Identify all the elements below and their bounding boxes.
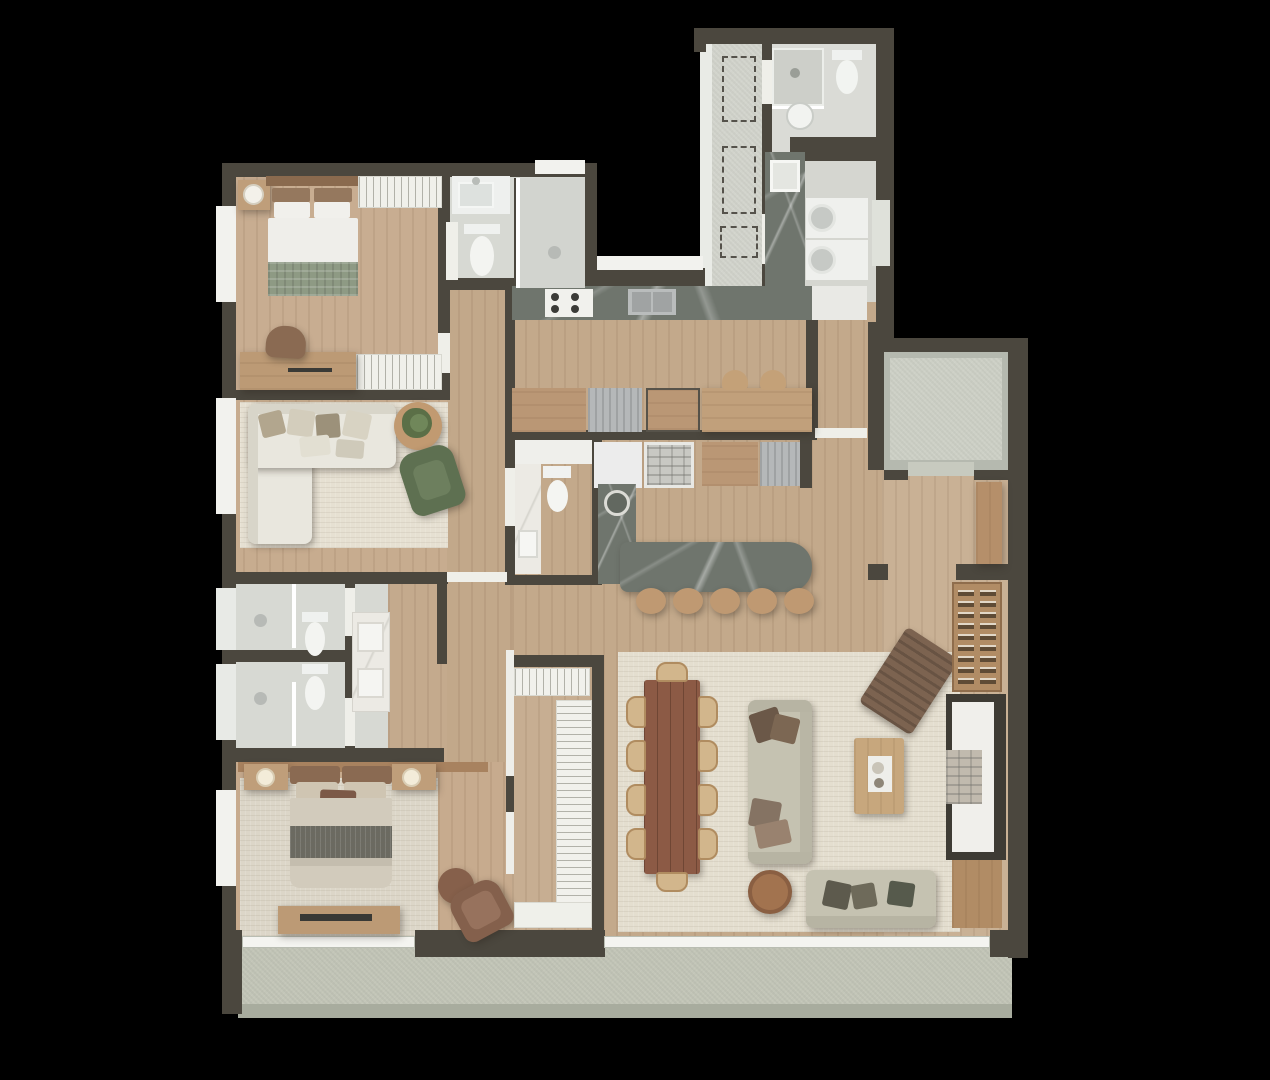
bed1-pillow-brown-b bbox=[314, 188, 352, 202]
mbath-a-toilet-tank bbox=[302, 612, 328, 622]
dining-chair-l3 bbox=[626, 784, 646, 816]
kitchen-counter-white bbox=[812, 286, 867, 320]
bath2-toilet-bowl bbox=[470, 236, 494, 276]
door-bath2 bbox=[446, 222, 458, 280]
kitchen-table bbox=[702, 388, 812, 432]
island-sink bbox=[604, 490, 630, 516]
dining-chair-r4 bbox=[698, 828, 718, 860]
fridge bbox=[588, 388, 642, 432]
master-sink-a bbox=[357, 622, 384, 652]
mbath-b-glass bbox=[292, 682, 296, 746]
elevator-step bbox=[908, 462, 974, 476]
dining-chair-head-bottom bbox=[656, 872, 688, 892]
bed1-pillow-brown-a bbox=[272, 188, 310, 202]
appliance-outline-a bbox=[722, 56, 756, 122]
burner-2 bbox=[551, 305, 559, 313]
wall-mbath-divider bbox=[230, 650, 348, 662]
desk-accessory bbox=[288, 368, 332, 372]
wall-hallway-right bbox=[868, 322, 884, 470]
mbed-lamp-2 bbox=[402, 768, 421, 787]
wall-bedroom1-bottom bbox=[222, 390, 450, 400]
wine-rack-a bbox=[958, 590, 974, 684]
window-master bbox=[216, 790, 236, 886]
kitchen-cabinet-white bbox=[594, 442, 642, 488]
wall-powder-bottom bbox=[505, 575, 602, 585]
threshold-hallway bbox=[815, 428, 867, 438]
dining-chair-head-top bbox=[656, 662, 688, 682]
powder-toilet-tank bbox=[543, 466, 571, 478]
wall-sitting-mbath bbox=[222, 572, 448, 584]
mbath-b-toilet-tank bbox=[302, 664, 328, 674]
sofa-main-arm-bottom bbox=[748, 852, 812, 864]
sofa-second-back bbox=[806, 916, 936, 928]
window-bedroom1 bbox=[216, 206, 236, 302]
bath2-faucet bbox=[472, 177, 480, 185]
kitchen-sink-bowl-l bbox=[632, 292, 651, 312]
dining-table bbox=[644, 680, 700, 874]
mbath-a-toilet-bowl bbox=[305, 622, 325, 656]
wall-closet-door-jamb bbox=[506, 776, 514, 812]
window-mbath-b bbox=[216, 664, 236, 740]
powder-counter bbox=[515, 440, 592, 464]
window-sitting bbox=[216, 398, 236, 514]
wall-right-outer bbox=[1008, 338, 1028, 958]
wall-closet-living bbox=[592, 655, 604, 957]
appliance-outline-b bbox=[722, 146, 756, 214]
glass-door-bedroom bbox=[242, 936, 415, 948]
wall-row2-right bbox=[800, 438, 812, 488]
kitchen-cabinet-a bbox=[512, 388, 586, 432]
sectional-pillow-b bbox=[286, 408, 315, 437]
appliance-steel bbox=[760, 442, 800, 486]
door-powder bbox=[505, 468, 515, 526]
plant-leaves bbox=[410, 414, 428, 432]
dining-chair-r2 bbox=[698, 740, 718, 772]
sectional-pillow-d bbox=[342, 410, 373, 441]
bath2-shower-floor bbox=[520, 178, 585, 288]
dining-chair-r3 bbox=[698, 784, 718, 816]
washer-door bbox=[808, 204, 836, 232]
island bbox=[620, 542, 812, 592]
side-table bbox=[748, 870, 792, 914]
laundry-sink bbox=[770, 160, 800, 192]
kitchen-sink-bowl-r bbox=[653, 292, 672, 312]
mbed-fold bbox=[290, 858, 392, 866]
dining-chair-l2 bbox=[626, 740, 646, 772]
wall-top-bedroom1 bbox=[222, 163, 450, 177]
sofa2-pillow-b bbox=[850, 882, 878, 910]
window-mbath-a bbox=[216, 588, 236, 650]
foyer-console bbox=[976, 482, 1002, 564]
appliance-outline-c bbox=[720, 226, 758, 258]
closet-shelf-b bbox=[556, 700, 592, 904]
door-service-a bbox=[762, 60, 772, 104]
bed1-duvet bbox=[268, 218, 358, 264]
decor-vase-a bbox=[872, 762, 884, 774]
bed1-blanket bbox=[268, 262, 358, 296]
wall-foyer-left bbox=[868, 564, 888, 580]
sofa-main-arm-top bbox=[748, 700, 812, 712]
master-sink-b bbox=[357, 668, 384, 698]
floor-plan-stage bbox=[0, 0, 1270, 1080]
wall-lobby-top bbox=[876, 338, 1028, 352]
closet-bench bbox=[514, 902, 592, 928]
lamp-1 bbox=[243, 184, 264, 205]
window-bath2 bbox=[535, 160, 585, 174]
island-stool-2 bbox=[673, 588, 703, 614]
mbath-b-shower-head bbox=[254, 692, 267, 705]
service-shower-drain bbox=[790, 68, 800, 78]
dining-chair-l1 bbox=[626, 696, 646, 728]
sectional-back-left bbox=[248, 404, 258, 544]
glass-door-living bbox=[604, 936, 990, 948]
wall-service-top bbox=[694, 28, 894, 44]
closet-shelf-a bbox=[514, 668, 590, 696]
island-stool-1 bbox=[636, 588, 666, 614]
mbed-runner bbox=[290, 826, 392, 858]
burner-1 bbox=[551, 293, 559, 301]
wall-foyer-wine bbox=[956, 564, 1008, 580]
wall-dressing bbox=[437, 584, 447, 664]
bed1-pillow-white-b bbox=[314, 202, 350, 218]
burner-3 bbox=[571, 293, 579, 301]
service-toilet-tank bbox=[832, 50, 862, 60]
wall-kitchen-notch bbox=[595, 268, 705, 286]
sectional-pillow-f bbox=[335, 439, 364, 459]
bath2-shower-glass bbox=[516, 178, 520, 288]
sofa2-pillow-a bbox=[822, 880, 853, 911]
sectional-pillow-e bbox=[299, 434, 331, 457]
burner-4 bbox=[571, 305, 579, 313]
threshold-master-suite bbox=[447, 572, 507, 582]
mbath-a-glass bbox=[292, 584, 296, 648]
wardrobe-1b bbox=[356, 354, 442, 390]
balcony-edge bbox=[238, 1004, 1012, 1018]
wall-bottom-left-corner bbox=[222, 930, 242, 1014]
wardrobe-1a bbox=[358, 176, 442, 208]
sofa-main-back bbox=[800, 712, 812, 852]
wall-service-corner bbox=[694, 28, 706, 52]
wall-mbath-bedroom bbox=[222, 748, 444, 762]
mbed-lamp-1 bbox=[256, 768, 275, 787]
bed1-headboard bbox=[266, 176, 360, 186]
corridor-floor bbox=[445, 288, 512, 762]
bath2-toilet-tank bbox=[464, 224, 500, 234]
wall-closet-top bbox=[512, 655, 600, 667]
balcony-floor bbox=[238, 938, 1012, 1008]
bath2-shower-head bbox=[548, 246, 561, 259]
service-toilet-bowl bbox=[836, 60, 858, 94]
oven-brick bbox=[644, 442, 694, 488]
wine-rack-b bbox=[980, 590, 996, 684]
dining-chair-l4 bbox=[626, 828, 646, 860]
window-laundry bbox=[872, 200, 890, 266]
service-ledge bbox=[700, 44, 712, 290]
dining-chair-r1 bbox=[698, 696, 718, 728]
fireplace-stone bbox=[946, 750, 982, 804]
kitchen-stool-a bbox=[722, 370, 748, 390]
elevator-floor bbox=[890, 358, 1002, 460]
service-sink bbox=[786, 102, 814, 130]
bath2-basin bbox=[458, 182, 494, 208]
dryer-door bbox=[808, 246, 836, 274]
sofa2-pillow-c bbox=[886, 880, 915, 907]
kitchen-stool-b bbox=[760, 370, 786, 390]
island-stool-5 bbox=[784, 588, 814, 614]
powder-sink bbox=[518, 530, 538, 558]
closet-panel-a bbox=[506, 650, 514, 776]
decor-vase-b bbox=[874, 778, 884, 788]
wall-service-right bbox=[876, 28, 894, 344]
island-stool-4 bbox=[747, 588, 777, 614]
powder-toilet-bowl bbox=[547, 480, 568, 512]
window-kitchen bbox=[597, 256, 703, 270]
mbath-a-shower-head bbox=[254, 614, 267, 627]
kitchen-cabinet-c bbox=[702, 442, 758, 486]
bed1-pillow-white-a bbox=[274, 202, 310, 218]
mbath-b-toilet-bowl bbox=[305, 676, 325, 710]
master-tv bbox=[300, 914, 372, 921]
cabinet-right bbox=[952, 860, 1002, 928]
closet-panel-b bbox=[506, 812, 514, 874]
island-stool-3 bbox=[710, 588, 740, 614]
wall-bottom-center bbox=[415, 930, 605, 957]
kitchen-cabinet-b bbox=[646, 388, 700, 432]
